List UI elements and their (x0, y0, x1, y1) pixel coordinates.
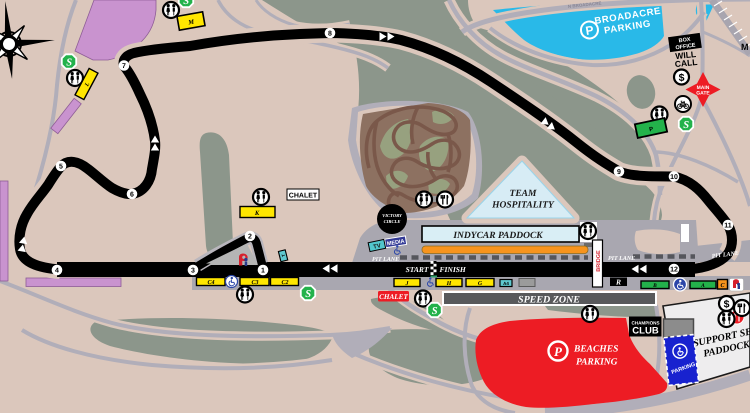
svg-text:C4: C4 (207, 280, 214, 286)
svg-text:2: 2 (248, 234, 252, 241)
svg-text:K: K (254, 210, 260, 217)
svg-text:BEACHES: BEACHES (573, 345, 618, 355)
svg-text:M: M (741, 42, 749, 52)
svg-text:8: 8 (328, 31, 332, 38)
svg-text:BRIDGE: BRIDGE (596, 250, 602, 272)
svg-text:P: P (554, 344, 563, 359)
svg-text:FINISH: FINISH (440, 265, 467, 274)
svg-text:INDYCAR PADDOCK: INDYCAR PADDOCK (452, 231, 543, 241)
svg-text:5: 5 (59, 164, 63, 171)
svg-text:HOSPITALITY: HOSPITALITY (491, 201, 555, 211)
svg-text:4: 4 (55, 268, 59, 275)
svg-text:1: 1 (261, 268, 265, 275)
svg-text:TEAM: TEAM (510, 189, 537, 199)
svg-text:SPEED ZONE: SPEED ZONE (518, 295, 580, 306)
svg-text:PIT LANE: PIT LANE (372, 257, 399, 263)
svg-text:PARKING: PARKING (576, 358, 618, 368)
svg-text:CIRCLE: CIRCLE (384, 219, 401, 224)
svg-text:C2: C2 (281, 280, 288, 286)
svg-text:PIT LANE: PIT LANE (608, 256, 635, 262)
svg-text:9: 9 (617, 169, 621, 176)
svg-text:GATE: GATE (696, 91, 710, 97)
svg-text:H: H (446, 281, 452, 287)
svg-text:7: 7 (122, 63, 126, 70)
svg-text:C3: C3 (251, 280, 258, 286)
svg-text:G: G (478, 281, 483, 287)
svg-text:10: 10 (670, 174, 678, 181)
svg-text:VICTORY: VICTORY (382, 213, 403, 218)
svg-text:CHALET: CHALET (289, 193, 318, 200)
svg-text:11: 11 (724, 223, 732, 230)
svg-text:A4: A4 (503, 281, 509, 286)
svg-text:3: 3 (191, 268, 195, 275)
svg-text:12: 12 (670, 267, 678, 274)
svg-text:R: R (615, 278, 621, 287)
svg-text:START: START (406, 265, 429, 274)
svg-text:CLUB: CLUB (632, 326, 659, 337)
svg-text:B: B (652, 283, 657, 289)
svg-text:A: A (700, 283, 705, 289)
svg-text:CHALET: CHALET (379, 293, 408, 301)
svg-text:6: 6 (130, 192, 134, 199)
